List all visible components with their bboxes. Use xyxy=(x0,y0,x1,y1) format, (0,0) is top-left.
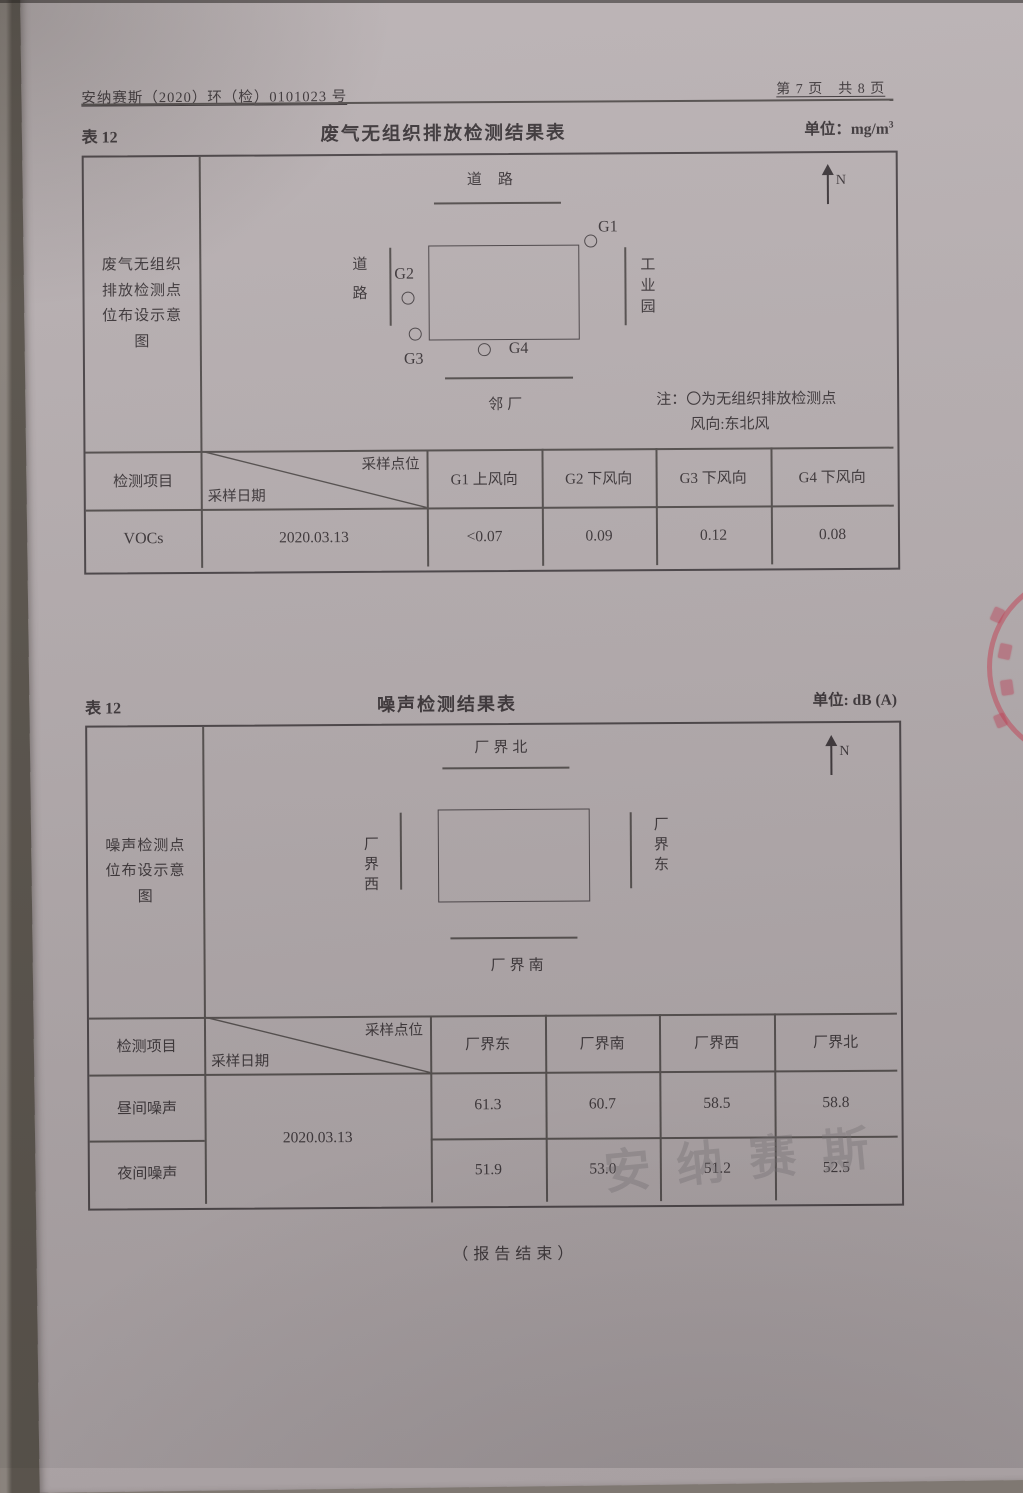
table2-unit: 单位: dB (A) xyxy=(762,688,897,711)
table1-col-g2: G2 下风向 xyxy=(541,448,655,507)
monitoring-point-icon-g2 xyxy=(402,292,415,305)
monitoring-point-icon-g1 xyxy=(584,234,597,247)
diagram1-note-line2: 风向:东北风 xyxy=(690,412,769,433)
diagram2-south-boundary-label: 厂界南 xyxy=(491,954,548,975)
diagram2-west-boundary-label: 厂界西 xyxy=(360,836,381,896)
table2-diagram-caption: 噪声检测点位布设示意图 xyxy=(102,834,188,911)
diagram2-east-boundary-label: 厂界东 xyxy=(650,816,671,876)
diagram2-north-boundary-label: 厂界北 xyxy=(474,736,531,757)
diagram2-left-line xyxy=(400,813,402,890)
table2-col-west: 厂界西 xyxy=(659,1013,774,1071)
table2-corner-sampling-date: 采样日期 xyxy=(211,1049,269,1070)
table2-col-north: 厂界北 xyxy=(774,1013,897,1071)
diagram1-bottom-line xyxy=(445,377,573,379)
point-label-g1: G1 xyxy=(598,218,618,236)
point-label-g2: G2 xyxy=(394,266,414,284)
point-label-g3: G3 xyxy=(404,351,424,369)
north-arrow-icon: N xyxy=(822,737,862,783)
table2-merged-date: 2020.03.13 xyxy=(204,1073,431,1204)
monitoring-point-icon-g4 xyxy=(478,343,491,356)
diagram1-plant-outline xyxy=(428,245,580,341)
table1-row-item: VOCs xyxy=(86,509,201,569)
north-arrow-shaft xyxy=(827,173,829,204)
table2-col-south: 厂界南 xyxy=(545,1014,659,1072)
table1-unit-text: 单位：mg/m xyxy=(804,121,888,139)
table1-label: 表 12 xyxy=(81,123,117,147)
diagram2-top-line xyxy=(442,767,569,769)
table1-value-g3: 0.12 xyxy=(656,505,771,565)
diagram1-left-line xyxy=(389,248,391,326)
table2-row1-south: 60.7 xyxy=(545,1071,659,1138)
table2-row2-item: 夜间噪声 xyxy=(90,1140,205,1205)
table2-col-east: 厂界东 xyxy=(430,1015,545,1073)
diagram1-left-road-label: 道路 xyxy=(348,256,369,314)
diagram1-top-road-line xyxy=(434,202,561,204)
page-content: 安纳赛斯（2020）环（检）0101023 号 第 7 页 共 8 页 表 12… xyxy=(0,0,1023,1471)
diagram1-top-road-label: 道路 xyxy=(467,168,529,189)
table1-corner-sampling-point: 采样点位 xyxy=(361,453,419,474)
north-arrow-shaft xyxy=(830,744,832,775)
table1-header-item: 检测项目 xyxy=(85,451,200,510)
table1-col-g3: G3 下风向 xyxy=(655,447,770,506)
table2-title: 噪声检测结果表 xyxy=(297,689,597,717)
table2-header-item: 检测项目 xyxy=(89,1017,204,1075)
table1-title: 废气无组织排放检测结果表 xyxy=(293,118,593,146)
diagram1-note-line1: 注：〇为无组织排放检测点 xyxy=(656,387,836,409)
table1-row-date: 2020.03.13 xyxy=(201,508,427,568)
diagram1-neighbor-plant-label: 邻厂 xyxy=(488,393,526,414)
table2-label: 表 12 xyxy=(85,694,121,718)
red-stamp-glyph xyxy=(1000,679,1014,696)
table1-value-g4: 0.08 xyxy=(771,505,894,565)
table1-col-g1: G1 上风向 xyxy=(426,449,541,508)
page-indicator: 第 7 页 共 8 页 xyxy=(776,78,885,99)
north-label: N xyxy=(839,744,849,760)
table1-unit-sup: 3 xyxy=(889,120,894,131)
table1-col-g4: G4 下风向 xyxy=(770,447,893,506)
table1-value-g1: <0.07 xyxy=(427,507,542,567)
table2-row1-item: 昼间噪声 xyxy=(89,1074,204,1141)
north-arrow-icon: N xyxy=(819,166,859,212)
table2-row2-east: 51.9 xyxy=(431,1138,546,1203)
diagram2-right-line xyxy=(630,812,632,888)
table1-diagram-caption-cell: 废气无组织排放检测点位布设示意图 xyxy=(84,157,201,452)
table2-diagonal-cell: 采样点位 采样日期 xyxy=(204,1016,430,1074)
diagram1-industrial-park-label: 工业园 xyxy=(636,256,657,319)
diagram1-right-line xyxy=(624,247,626,325)
table1-diagram-caption: 废气无组织排放检测点位布设示意图 xyxy=(99,253,186,356)
table2-diagram-caption-cell: 噪声检测点位布设示意图 xyxy=(87,727,204,1018)
report-end-note: （报告结束） xyxy=(355,1239,675,1265)
table1: 废气无组织排放检测点位布设示意图 道路 N G1 工业园 道路 G2 G3 G4… xyxy=(82,151,901,575)
table1-diagonal-cell: 采样点位 采样日期 xyxy=(200,450,426,509)
point-label-g4: G4 xyxy=(509,340,529,358)
scanned-report-page: { "page": { "doc_number": "安纳赛斯（2020）环（检… xyxy=(0,0,1023,1468)
diagram2-bottom-line xyxy=(450,937,577,939)
monitoring-point-icon-g3 xyxy=(409,328,422,341)
table1-unit: 单位：mg/m3 xyxy=(753,117,893,140)
north-label: N xyxy=(836,173,846,189)
table1-value-g2: 0.09 xyxy=(542,506,656,566)
table1-corner-sampling-date: 采样日期 xyxy=(208,485,266,506)
diagram2-plant-outline xyxy=(438,809,591,903)
table2-row1-east: 61.3 xyxy=(430,1072,545,1139)
table2-corner-sampling-point: 采样点位 xyxy=(365,1019,423,1040)
